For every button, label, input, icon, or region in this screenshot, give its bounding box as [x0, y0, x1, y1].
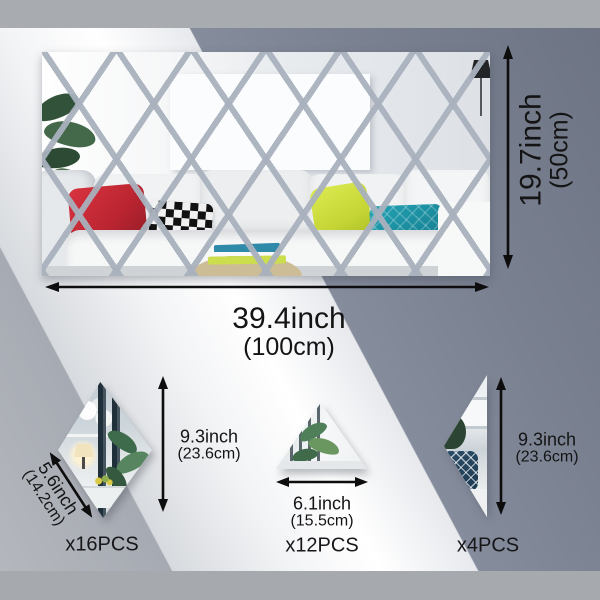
- triangle-width-inch: 6.1inch: [290, 494, 353, 513]
- half-reflection-sofa: [444, 489, 487, 517]
- half-height-label: 9.3inch (23.6cm): [515, 430, 578, 465]
- rhombus-reflection-bouquet: [92, 474, 114, 488]
- main-height-cm: (50cm): [547, 93, 573, 206]
- half-height-inch: 9.3inch: [515, 430, 578, 449]
- width-dimension-arrow: [44, 279, 490, 295]
- triangle-mirror-piece: [276, 403, 367, 469]
- half-rhombus-piece-wrap: [444, 375, 487, 517]
- rhombus-height-inch: 9.3inch: [177, 427, 240, 446]
- triangle-width-arrow: [275, 474, 369, 490]
- half-height-arrow: [493, 376, 509, 516]
- main-width-cm: (100cm): [232, 334, 345, 360]
- main-mirror-photo: [42, 52, 490, 276]
- triangle-piece-wrap: [276, 403, 367, 469]
- half-count-label: x4PCS: [457, 535, 519, 558]
- rhombus-count-label: x16PCS: [65, 534, 138, 557]
- triangle-width-label: 6.1inch (15.5cm): [290, 494, 353, 529]
- rhombus-reflection-lamp: [74, 444, 94, 457]
- triangle-count-label: x12PCS: [285, 535, 358, 558]
- product-dimension-diagram: 39.4inch (100cm) 19.7inch (50cm) 9.3inch…: [0, 0, 600, 600]
- half-rhombus-mirror-piece: [444, 375, 487, 517]
- mirror-diamond-grid-lines: [42, 52, 490, 276]
- half-reflection-navy-pillow: [444, 451, 478, 491]
- rhombus-height-arrow: [155, 375, 171, 513]
- bottom-gray-bar: [0, 571, 600, 600]
- rhombus-height-cm: (23.6cm): [177, 446, 240, 463]
- main-width-label: 39.4inch (100cm): [232, 303, 345, 360]
- triangle-reflection-sill: [276, 461, 367, 469]
- triangle-width-cm: (15.5cm): [290, 513, 353, 530]
- half-reflection-window-frame: [444, 397, 487, 429]
- main-width-inch: 39.4inch: [232, 303, 345, 334]
- rhombus-reflection-lamp-base: [82, 457, 85, 469]
- main-height-inch: 19.7inch: [515, 93, 546, 206]
- rhombus-height-label: 9.3inch (23.6cm): [177, 427, 240, 462]
- half-height-cm: (23.6cm): [515, 449, 578, 466]
- main-height-label: 19.7inch (50cm): [515, 93, 572, 206]
- top-gray-bar: [0, 0, 600, 28]
